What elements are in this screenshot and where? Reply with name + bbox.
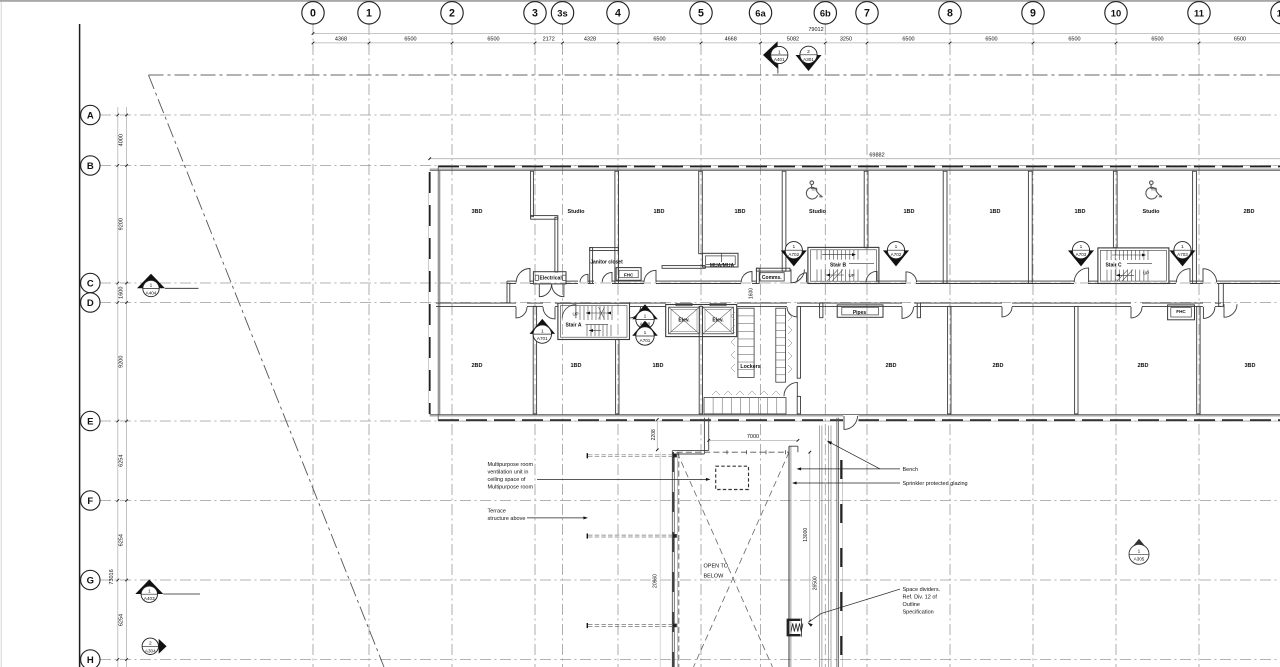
svg-text:B: B	[87, 161, 94, 172]
svg-text:2208: 2208	[651, 429, 657, 440]
svg-text:1BD: 1BD	[903, 209, 914, 215]
svg-text:Studio: Studio	[1142, 209, 1160, 215]
svg-text:FHC: FHC	[624, 273, 634, 278]
svg-text:Elev.: Elev.	[712, 317, 724, 323]
svg-text:6254: 6254	[118, 534, 124, 546]
svg-text:4: 4	[615, 8, 621, 20]
svg-text:10: 10	[1111, 8, 1121, 19]
svg-text:Ref. Div. 12 of: Ref. Div. 12 of	[903, 594, 938, 600]
svg-text:0: 0	[310, 8, 316, 20]
svg-text:6500: 6500	[1068, 37, 1080, 43]
svg-text:6254: 6254	[118, 455, 124, 467]
svg-text:4328: 4328	[584, 37, 596, 43]
svg-text:D: D	[87, 298, 94, 309]
svg-text:ceiling space of: ceiling space of	[488, 477, 526, 483]
svg-text:Multipurpose room: Multipurpose room	[488, 485, 534, 491]
svg-text:Specification: Specification	[903, 609, 934, 615]
svg-text:3250: 3250	[840, 37, 852, 43]
svg-text:A401: A401	[774, 57, 785, 62]
svg-text:A: A	[87, 110, 94, 121]
svg-text:Elev.: Elev.	[678, 317, 690, 323]
svg-text:1BD: 1BD	[734, 209, 745, 215]
svg-text:Lockers: Lockers	[740, 364, 760, 370]
svg-text:1600: 1600	[118, 287, 124, 299]
svg-text:2BD: 2BD	[992, 363, 1003, 369]
svg-text:1: 1	[792, 244, 795, 250]
svg-text:1: 1	[541, 328, 544, 334]
svg-text:Stair B: Stair B	[830, 262, 847, 268]
svg-text:Space dividers.: Space dividers.	[903, 587, 941, 593]
svg-text:4668: 4668	[725, 37, 737, 43]
svg-text:Stair C: Stair C	[1105, 263, 1122, 269]
svg-text:13000: 13000	[803, 528, 809, 542]
svg-text:Studio: Studio	[809, 209, 827, 215]
svg-text:6500: 6500	[404, 37, 416, 43]
svg-text:1BD: 1BD	[989, 209, 1000, 215]
svg-text:6254: 6254	[118, 614, 124, 626]
svg-text:UP: UP	[848, 273, 854, 278]
svg-text:MUA/MUA: MUA/MUA	[710, 263, 735, 269]
svg-text:6500: 6500	[653, 37, 665, 43]
svg-text:11: 11	[1194, 8, 1204, 19]
svg-text:Sprinkler protected glazing: Sprinkler protected glazing	[903, 481, 968, 487]
svg-text:6500: 6500	[902, 37, 914, 43]
svg-text:6500: 6500	[1234, 37, 1246, 43]
svg-text:79012: 79012	[808, 27, 823, 33]
svg-text:2BD: 2BD	[885, 363, 896, 369]
svg-text:3BD: 3BD	[1244, 363, 1255, 369]
svg-text:73016: 73016	[109, 569, 115, 584]
svg-text:Terrace: Terrace	[488, 508, 506, 514]
svg-text:20960: 20960	[652, 574, 658, 588]
svg-text:A702: A702	[891, 252, 902, 257]
svg-text:A701: A701	[537, 336, 548, 341]
svg-text:1: 1	[366, 8, 372, 20]
svg-text:1: 1	[644, 330, 647, 336]
svg-text:2BD: 2BD	[1243, 209, 1254, 215]
svg-text:1BD: 1BD	[570, 363, 581, 369]
svg-text:5: 5	[698, 8, 704, 20]
svg-text:1600: 1600	[749, 288, 755, 299]
svg-text:Pipes: Pipes	[853, 310, 867, 316]
svg-text:4368: 4368	[335, 37, 347, 43]
svg-text:BELOW: BELOW	[704, 574, 725, 580]
svg-text:C: C	[87, 278, 94, 289]
svg-text:A305: A305	[1134, 556, 1145, 561]
svg-text:Outline: Outline	[903, 602, 920, 608]
svg-text:structure above: structure above	[488, 516, 526, 522]
svg-text:1: 1	[148, 588, 151, 594]
svg-text:A702: A702	[788, 252, 799, 257]
svg-text:26500: 26500	[812, 576, 818, 590]
svg-text:6a: 6a	[755, 8, 766, 19]
svg-text:6500: 6500	[985, 37, 997, 43]
svg-text:69882: 69882	[869, 152, 884, 158]
svg-text:FHC: FHC	[1176, 309, 1186, 314]
svg-text:6b: 6b	[820, 8, 831, 19]
svg-text:UP: UP	[572, 312, 578, 317]
svg-text:A304: A304	[145, 648, 156, 653]
svg-text:A403: A403	[144, 596, 155, 601]
svg-text:2BD: 2BD	[471, 363, 482, 369]
svg-text:3: 3	[532, 8, 538, 20]
svg-text:2: 2	[149, 641, 152, 647]
svg-text:E: E	[87, 416, 93, 427]
svg-text:1BD: 1BD	[653, 209, 664, 215]
svg-text:Janitor closet: Janitor closet	[590, 260, 623, 266]
svg-text:Bench: Bench	[903, 467, 919, 473]
svg-text:A703: A703	[1177, 252, 1188, 257]
svg-text:3BD: 3BD	[471, 209, 482, 215]
svg-text:F: F	[87, 496, 93, 507]
svg-text:9200: 9200	[118, 356, 124, 368]
svg-text:A301: A301	[803, 57, 814, 62]
svg-text:1BD: 1BD	[1074, 209, 1085, 215]
svg-text:1: 1	[1138, 549, 1141, 555]
svg-text:Multipurpose room: Multipurpose room	[488, 462, 534, 468]
svg-text:9200: 9200	[118, 218, 124, 230]
svg-text:1: 1	[895, 244, 898, 250]
svg-text:ventilation unit in: ventilation unit in	[488, 470, 529, 476]
svg-text:3s: 3s	[557, 8, 567, 19]
svg-text:Stair A: Stair A	[566, 322, 582, 328]
svg-text:G: G	[87, 575, 94, 586]
svg-text:4000: 4000	[118, 134, 124, 146]
svg-text:Electrical: Electrical	[539, 276, 562, 282]
svg-text:5082: 5082	[787, 37, 799, 43]
svg-text:6500: 6500	[487, 37, 499, 43]
svg-text:7: 7	[864, 8, 870, 20]
svg-text:9: 9	[1030, 8, 1036, 20]
svg-text:1: 1	[644, 314, 647, 320]
svg-text:A404: A404	[146, 291, 157, 296]
svg-text:8: 8	[947, 8, 953, 20]
svg-text:2: 2	[449, 8, 455, 20]
svg-text:Studio: Studio	[567, 209, 585, 215]
svg-text:1BD: 1BD	[652, 363, 663, 369]
svg-text:1: 1	[1181, 244, 1184, 250]
svg-text:A701: A701	[640, 338, 651, 343]
svg-text:Comms.: Comms.	[762, 275, 782, 281]
svg-text:OPEN TO: OPEN TO	[704, 564, 729, 570]
svg-text:A703: A703	[1076, 252, 1087, 257]
svg-text:UP: UP	[1143, 271, 1149, 276]
svg-text:1: 1	[778, 49, 781, 55]
svg-text:H: H	[87, 655, 94, 666]
svg-text:6500: 6500	[1151, 37, 1163, 43]
svg-text:7000: 7000	[747, 434, 759, 440]
svg-text:2: 2	[807, 49, 810, 55]
svg-text:2BD: 2BD	[1137, 363, 1148, 369]
svg-text:1: 1	[1080, 244, 1083, 250]
svg-text:2172: 2172	[543, 37, 555, 43]
svg-text:1: 1	[150, 283, 153, 289]
